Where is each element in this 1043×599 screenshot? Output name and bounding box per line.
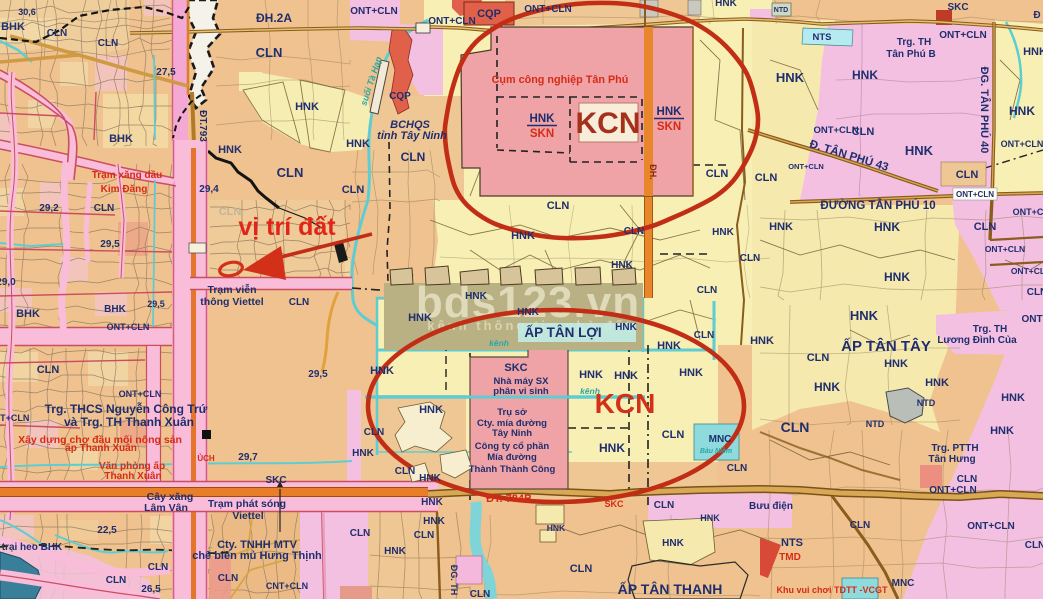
svg-text:BHK: BHK <box>16 308 40 320</box>
svg-text:CLN: CLN <box>547 200 570 212</box>
svg-text:CLN: CLN <box>277 165 304 180</box>
svg-text:ẤP TÂN LỢI: ẤP TÂN LỢI <box>524 325 601 340</box>
svg-text:CLN: CLN <box>654 500 675 511</box>
svg-text:ĐG. TÂN PHÚ 40: ĐG. TÂN PHÚ 40 <box>978 67 991 154</box>
svg-text:CLN: CLN <box>781 419 810 435</box>
svg-text:HNK: HNK <box>511 230 535 242</box>
svg-text:CLN: CLN <box>470 589 491 599</box>
svg-text:Tây Ninh: Tây Ninh <box>492 428 532 439</box>
svg-text:Mía đường: Mía đường <box>487 452 537 463</box>
svg-text:CLN: CLN <box>148 562 169 573</box>
svg-text:HNK: HNK <box>295 101 319 113</box>
svg-text:Trg. TH: Trg. TH <box>897 37 931 48</box>
svg-text:HNK: HNK <box>776 70 805 85</box>
svg-text:CLN: CLN <box>956 169 979 181</box>
svg-text:HNK: HNK <box>579 369 603 381</box>
svg-text:tỉnh Tây Ninh: tỉnh Tây Ninh <box>377 130 447 142</box>
svg-text:CLN: CLN <box>957 474 978 485</box>
svg-text:vị trí đất: vị trí đất <box>238 213 336 241</box>
svg-text:CQP: CQP <box>477 8 501 20</box>
svg-text:phân vi sinh: phân vi sinh <box>493 386 549 397</box>
svg-text:HNK: HNK <box>370 365 394 377</box>
svg-text:ONT+CLN: ONT+CLN <box>107 322 150 332</box>
svg-text:CLN: CLN <box>414 530 435 541</box>
svg-text:CLN: CLN <box>974 221 997 233</box>
svg-text:ONT+CLN: ONT+CLN <box>956 190 994 199</box>
svg-text:ĐH.: ĐH. <box>648 164 658 180</box>
svg-text:ONT+CLN: ONT+CLN <box>929 485 977 496</box>
svg-text:29,0: 29,0 <box>0 277 16 288</box>
svg-text:Trg. THCS Nguyễn Công Trứ: Trg. THCS Nguyễn Công Trứ <box>45 401 208 416</box>
svg-text:HNK: HNK <box>750 335 774 347</box>
svg-text:CLN: CLN <box>106 575 127 586</box>
svg-text:Tân Hưng: Tân Hưng <box>928 454 975 465</box>
svg-text:CLN: CLN <box>662 429 685 441</box>
svg-text:BHK: BHK <box>109 133 133 145</box>
svg-text:MNC: MNC <box>892 578 915 589</box>
svg-text:ONT+CLN: ONT+CLN <box>788 162 824 171</box>
svg-text:Bàu Niềm: Bàu Niềm <box>700 446 732 455</box>
svg-text:Trụ sở: Trụ sở <box>497 407 527 418</box>
svg-text:HNK: HNK <box>346 138 370 150</box>
svg-text:HNK: HNK <box>679 367 703 379</box>
svg-text:ỦCH: ỦCH <box>197 454 215 463</box>
svg-text:Trg. TH: Trg. TH <box>973 324 1007 335</box>
svg-text:Kim Đăng: Kim Đăng <box>101 184 148 195</box>
svg-text:ONT+CLN: ONT+CLN <box>119 389 162 399</box>
svg-text:NTD: NTD <box>917 398 936 408</box>
svg-text:SKN: SKN <box>657 121 681 133</box>
svg-text:HNK: HNK <box>715 0 737 9</box>
svg-text:BHK: BHK <box>104 304 126 315</box>
svg-text:HNK: HNK <box>408 312 432 324</box>
svg-text:HNK: HNK <box>884 270 910 284</box>
svg-text:29,5: 29,5 <box>100 239 120 250</box>
svg-text:CLN: CLN <box>727 463 748 474</box>
svg-text:HNK: HNK <box>874 220 900 234</box>
svg-text:HNK: HNK <box>657 340 681 352</box>
svg-text:chế biến mủ Hưng Thịnh: chế biến mủ Hưng Thịnh <box>192 550 322 562</box>
svg-text:ĐG. TH: ĐG. TH <box>449 565 459 596</box>
svg-text:Trạm phát sóng: Trạm phát sóng <box>208 498 286 510</box>
svg-text:CLN: CLN <box>697 285 718 296</box>
svg-text:ẤP TÂN THANH: ẤP TÂN THANH <box>618 580 723 597</box>
svg-text:MNC: MNC <box>709 434 732 445</box>
svg-text:26,5: 26,5 <box>141 584 161 595</box>
svg-text:và Trg. TH Thanh Xuân: và Trg. TH Thanh Xuân <box>64 415 194 429</box>
svg-text:HNK: HNK <box>1009 104 1035 118</box>
svg-text:29,4: 29,4 <box>199 184 219 195</box>
svg-text:CLN: CLN <box>350 528 371 539</box>
svg-text:HNK: HNK <box>662 538 684 549</box>
svg-text:CLN: CLN <box>755 172 778 184</box>
svg-text:27,5: 27,5 <box>156 67 176 78</box>
svg-text:Khu vui chơi TDTT -VCGT: Khu vui chơi TDTT -VCGT <box>777 585 888 595</box>
svg-text:HNK: HNK <box>352 448 374 459</box>
svg-text:CNT+CLN: CNT+CLN <box>266 581 308 591</box>
svg-text:ONT+CLN: ONT+CLN <box>524 4 572 15</box>
svg-text:Công ty cổ phần: Công ty cổ phần <box>475 441 550 452</box>
svg-text:SKN: SKN <box>530 128 554 140</box>
svg-text:HNK: HNK <box>423 516 445 527</box>
svg-text:30,6: 30,6 <box>18 7 36 17</box>
svg-text:ONT+CLN: ONT+CLN <box>428 16 476 27</box>
svg-text:HNK: HNK <box>421 497 443 508</box>
svg-text:Viettel: Viettel <box>232 510 263 522</box>
svg-text:ĐT.793: ĐT.793 <box>197 110 208 142</box>
svg-text:KCN: KCN <box>595 388 656 419</box>
svg-text:ONT+CLN: ONT+CLN <box>1013 207 1043 217</box>
svg-text:29,5: 29,5 <box>147 299 165 309</box>
svg-text:KCN: KCN <box>576 107 641 140</box>
svg-text:CLN: CLN <box>807 352 830 364</box>
svg-text:NTS: NTS <box>813 32 832 43</box>
svg-text:HNK: HNK <box>814 380 840 394</box>
svg-text:CLN: CLN <box>47 28 68 39</box>
svg-text:CLN: CLN <box>94 203 115 214</box>
svg-text:ONT+CLN: ONT+CLN <box>350 6 398 17</box>
svg-text:HNK: HNK <box>769 221 793 233</box>
svg-text:CLN: CLN <box>98 38 119 49</box>
svg-text:HNK: HNK <box>419 473 441 484</box>
svg-text:HNK: HNK <box>905 143 934 158</box>
svg-text:ONT+CLN: ONT+CLN <box>939 30 987 41</box>
svg-text:ONT+CLN: ONT+CLN <box>0 413 29 423</box>
svg-text:BHK: BHK <box>1 21 25 33</box>
svg-text:HNK: HNK <box>218 144 242 156</box>
svg-text:HNK: HNK <box>850 308 879 323</box>
svg-text:HNK: HNK <box>599 441 625 455</box>
svg-text:HNK: HNK <box>419 404 443 416</box>
svg-text:29,7: 29,7 <box>238 452 258 463</box>
svg-text:ONT+CLN: ONT+CLN <box>1001 139 1043 149</box>
svg-text:HNK: HNK <box>1023 46 1043 58</box>
svg-text:ẤP TÂN TÂY: ẤP TÂN TÂY <box>841 337 931 355</box>
svg-text:29,2: 29,2 <box>39 203 59 214</box>
svg-text:CLN: CLN <box>740 253 761 264</box>
svg-text:CLN: CLN <box>289 297 310 308</box>
svg-text:CLN: CLN <box>395 466 416 477</box>
svg-text:Trg. PTTH: Trg. PTTH <box>931 443 978 454</box>
svg-text:CLN: CLN <box>37 364 60 376</box>
svg-text:CLN: CLN <box>850 520 871 531</box>
svg-text:HNK: HNK <box>517 307 539 318</box>
svg-text:SKC: SKC <box>604 499 624 509</box>
svg-text:ONT+CLN: ONT+CLN <box>1011 266 1043 276</box>
svg-text:CLN: CLN <box>1027 287 1043 298</box>
svg-text:ấp Thanh Xuân: ấp Thanh Xuân <box>65 442 137 454</box>
svg-text:Trạm xăng dầu: Trạm xăng dầu <box>92 169 163 181</box>
svg-text:ĐH.2A: ĐH.2A <box>256 11 292 25</box>
svg-text:trại heo BHK: trại heo BHK <box>2 542 63 553</box>
svg-text:HNK: HNK <box>700 513 720 523</box>
svg-text:kênh: kênh <box>580 386 600 396</box>
svg-text:HNK: HNK <box>530 113 556 125</box>
svg-text:ONT+CLN: ONT+CLN <box>813 125 858 136</box>
svg-text:TMD: TMD <box>779 552 801 563</box>
svg-text:ONT: ONT <box>1021 314 1042 325</box>
svg-text:Tân Phú B: Tân Phú B <box>886 49 935 60</box>
svg-text:NTS: NTS <box>781 537 803 549</box>
svg-text:CLN: CLN <box>624 226 645 237</box>
svg-text:CLN: CLN <box>364 427 385 438</box>
svg-text:SKC: SKC <box>504 362 527 374</box>
svg-text:HNK: HNK <box>712 227 734 238</box>
svg-text:SKC: SKC <box>265 475 286 486</box>
svg-text:CLN: CLN <box>218 573 239 584</box>
svg-text:CLN: CLN <box>570 563 593 575</box>
svg-text:SKC: SKC <box>947 2 968 13</box>
svg-text:ĐT. 784B: ĐT. 784B <box>486 493 532 505</box>
svg-text:Thanh Xuân: Thanh Xuân <box>104 471 161 482</box>
svg-text:CLN: CLN <box>219 206 242 218</box>
svg-text:Lương Đình Của: Lương Đình Của <box>937 335 1017 346</box>
svg-text:Lâm Vân: Lâm Vân <box>144 502 188 514</box>
svg-text:CLN: CLN <box>256 45 283 60</box>
svg-text:CQP: CQP <box>389 91 411 102</box>
svg-text:ONT+CLN: ONT+CLN <box>967 521 1015 532</box>
svg-text:HNK: HNK <box>884 358 908 370</box>
svg-text:HNK: HNK <box>384 546 406 557</box>
svg-text:thông Viettel: thông Viettel <box>200 296 263 308</box>
svg-text:HNK: HNK <box>925 377 949 389</box>
svg-text:29,5: 29,5 <box>308 369 328 380</box>
svg-text:HNK: HNK <box>611 260 633 271</box>
svg-text:HNK: HNK <box>614 370 638 382</box>
svg-text:Đ: Đ <box>1033 10 1040 21</box>
svg-text:CLN: CLN <box>401 150 426 164</box>
svg-text:HNK: HNK <box>657 106 683 118</box>
svg-text:HNK: HNK <box>547 523 566 533</box>
svg-text:Trạm viễn: Trạm viễn <box>207 283 256 296</box>
svg-text:CLN: CLN <box>1025 540 1043 551</box>
svg-text:HNK: HNK <box>852 68 878 82</box>
svg-text:ĐƯỜNG TÂN PHÚ 10: ĐƯỜNG TÂN PHÚ 10 <box>820 199 935 212</box>
svg-text:22,5: 22,5 <box>97 525 117 536</box>
svg-text:CLN: CLN <box>342 184 365 196</box>
svg-text:NTD: NTD <box>774 7 788 14</box>
svg-text:CLN: CLN <box>694 330 715 341</box>
svg-text:HNK: HNK <box>615 322 637 333</box>
svg-text:Bưu điện: Bưu điện <box>749 501 793 512</box>
svg-text:ONT+CLN: ONT+CLN <box>985 244 1025 254</box>
svg-text:CLN: CLN <box>706 168 729 180</box>
svg-text:Thành Thành Công: Thành Thành Công <box>469 464 556 475</box>
svg-text:HNK: HNK <box>465 291 487 302</box>
svg-text:HNK: HNK <box>1001 392 1025 404</box>
svg-text:NTD: NTD <box>866 419 885 429</box>
svg-text:Cụm công nghiệp Tân Phú: Cụm công nghiệp Tân Phú <box>492 74 629 86</box>
svg-text:kênh: kênh <box>489 338 509 348</box>
svg-text:HNK: HNK <box>990 425 1014 437</box>
